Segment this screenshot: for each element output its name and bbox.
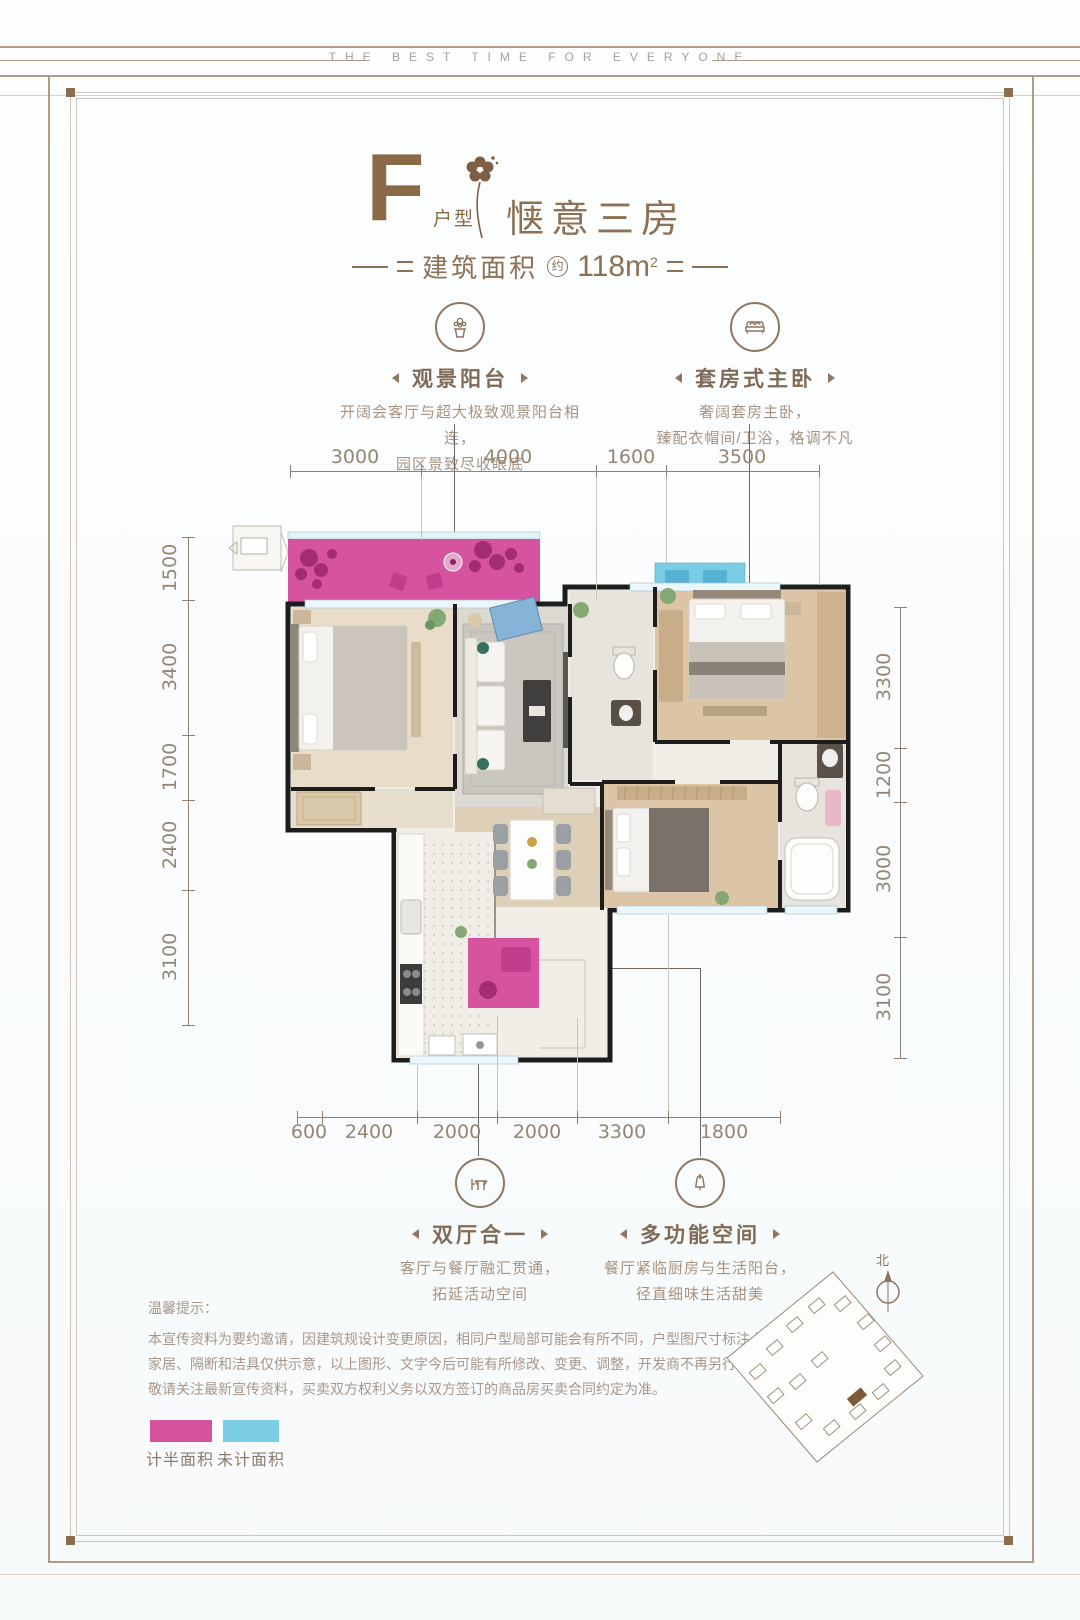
right-arrow-icon xyxy=(828,373,835,383)
dimension-tick xyxy=(894,802,907,803)
dimension-tick xyxy=(497,1111,498,1124)
dimension-line-left xyxy=(188,537,189,1025)
dimension-label: 1800 xyxy=(700,1121,748,1143)
dimension-label: 3300 xyxy=(873,653,895,701)
dimension-label: 600 xyxy=(291,1121,327,1143)
dimension-label: 1200 xyxy=(873,751,895,799)
dimension-label: 2400 xyxy=(345,1121,393,1143)
dimension-tick xyxy=(894,1058,907,1059)
dimension-tick xyxy=(290,465,291,478)
dimension-label: 3500 xyxy=(718,446,766,468)
extension-line xyxy=(421,477,422,540)
right-arrow-icon xyxy=(773,1229,780,1239)
dimension-line-right xyxy=(900,607,901,1058)
extension-line xyxy=(666,477,667,563)
dimension-label: 3300 xyxy=(598,1121,646,1143)
north-label: 北 xyxy=(876,1250,889,1269)
dimension-tick xyxy=(182,890,195,891)
legend-swatch-uncounted-area xyxy=(223,1420,279,1442)
view-balcony-pink xyxy=(288,532,540,604)
callout-title: 双厅合一 xyxy=(432,1219,528,1249)
area-rule-left-dash xyxy=(352,266,388,268)
dimension-label: 3000 xyxy=(331,446,379,468)
area-rule-left-double xyxy=(397,261,413,272)
area-row: 建筑面积 约 118m2 xyxy=(0,248,1080,285)
callout-suite-master: 套房式主卧 奢阔套房主卧， 臻配衣帽间/卫浴，格调不凡 xyxy=(625,302,885,452)
plant xyxy=(455,926,467,938)
legend-label-half-area: 计半面积 xyxy=(146,1446,214,1470)
dimension-tick xyxy=(894,748,907,749)
left-arrow-icon xyxy=(675,373,682,383)
right-arrow-icon xyxy=(541,1229,548,1239)
dimension-line-bottom xyxy=(297,1117,780,1118)
dimension-label: 3100 xyxy=(873,973,895,1021)
floorplan-poster: { "banner": { "text": "THE BEST TIME FOR… xyxy=(0,0,1080,1620)
floor-plan xyxy=(225,492,855,1072)
entry-porch xyxy=(229,526,295,572)
dimension-line-top xyxy=(290,471,819,472)
callout-desc-line1: 开阔会客厅与超大极致观景阳台相连， xyxy=(330,400,590,452)
dimension-tick xyxy=(668,1111,669,1124)
dimension-tick xyxy=(182,1025,195,1026)
dimension-label: 1600 xyxy=(607,446,655,468)
dimension-label: 3000 xyxy=(873,845,895,893)
area-rule-right-dash xyxy=(692,266,728,268)
callout-title-row: 套房式主卧 xyxy=(625,363,885,393)
area-number: 118m xyxy=(577,250,650,283)
dimension-tick xyxy=(577,1111,578,1124)
site-plan xyxy=(700,1240,950,1480)
banner-rule-top xyxy=(0,46,1080,48)
area-value: 118m2 xyxy=(577,250,658,284)
entry-rug xyxy=(297,792,361,825)
callout-title: 观景阳台 xyxy=(412,363,508,393)
dimension-tick xyxy=(417,1111,418,1124)
left-arrow-icon xyxy=(412,1229,419,1239)
banner-slogan: THE BEST TIME FOR EVERYONE xyxy=(0,50,1080,64)
dimension-label: 2400 xyxy=(159,821,181,869)
frame-corner-tr xyxy=(1004,88,1013,97)
callout-desc: 奢阔套房主卧， 臻配衣帽间/卫浴，格调不凡 xyxy=(625,400,885,452)
dimension-label: 3400 xyxy=(159,643,181,691)
area-exponent: 2 xyxy=(650,254,658,270)
bottom-rule-faint xyxy=(0,1574,1080,1575)
unit-name: 惬意三房 xyxy=(506,188,686,243)
dining-set xyxy=(493,820,571,900)
dimension-label: 1700 xyxy=(159,743,181,791)
dimension-tick xyxy=(894,937,907,938)
north-compass-icon xyxy=(877,1270,899,1312)
extension-line xyxy=(577,1018,578,1111)
legend-label-uncounted-area: 未计面积 xyxy=(217,1446,285,1470)
dimension-tick xyxy=(182,537,195,538)
flower-icon xyxy=(462,154,500,242)
callout-title: 套房式主卧 xyxy=(695,363,815,393)
dimension-label: 2000 xyxy=(433,1121,481,1143)
life-balcony-pink xyxy=(468,938,539,1008)
dimension-label: 1500 xyxy=(159,544,181,592)
callout-title-row: 观景阳台 xyxy=(330,363,590,393)
left-arrow-icon xyxy=(620,1229,627,1239)
dimension-tick xyxy=(182,800,195,801)
lamp-icon xyxy=(675,1158,725,1208)
legend-swatch-half-area xyxy=(150,1420,212,1442)
dimension-tick xyxy=(894,607,907,608)
dining-table-icon xyxy=(455,1158,505,1208)
area-prefix: 建筑面积 xyxy=(422,248,538,285)
left-arrow-icon xyxy=(392,373,399,383)
dimension-label: 2000 xyxy=(513,1121,561,1143)
potted-flower-icon xyxy=(435,302,485,352)
callout-desc-line1: 奢阔套房主卧， xyxy=(625,400,885,426)
dimension-label: 3100 xyxy=(159,933,181,981)
extension-line xyxy=(819,477,820,585)
extension-line xyxy=(417,1065,418,1111)
extension-line xyxy=(497,1016,498,1111)
dimension-tick xyxy=(780,1111,781,1124)
area-rule-right-double xyxy=(667,261,683,272)
frame-corner-bl xyxy=(66,1536,75,1545)
bed-icon xyxy=(730,302,780,352)
extension-line xyxy=(668,915,669,1111)
extension-line xyxy=(596,477,597,600)
frame-corner-tl xyxy=(66,88,75,97)
area-approx-circle: 约 xyxy=(547,256,568,277)
dimension-tick xyxy=(182,600,195,601)
unit-letter: F xyxy=(366,140,425,236)
frame-corner-br xyxy=(1004,1536,1013,1545)
dimension-tick xyxy=(182,735,195,736)
dimension-label: 4000 xyxy=(484,446,532,468)
right-arrow-icon xyxy=(521,373,528,383)
